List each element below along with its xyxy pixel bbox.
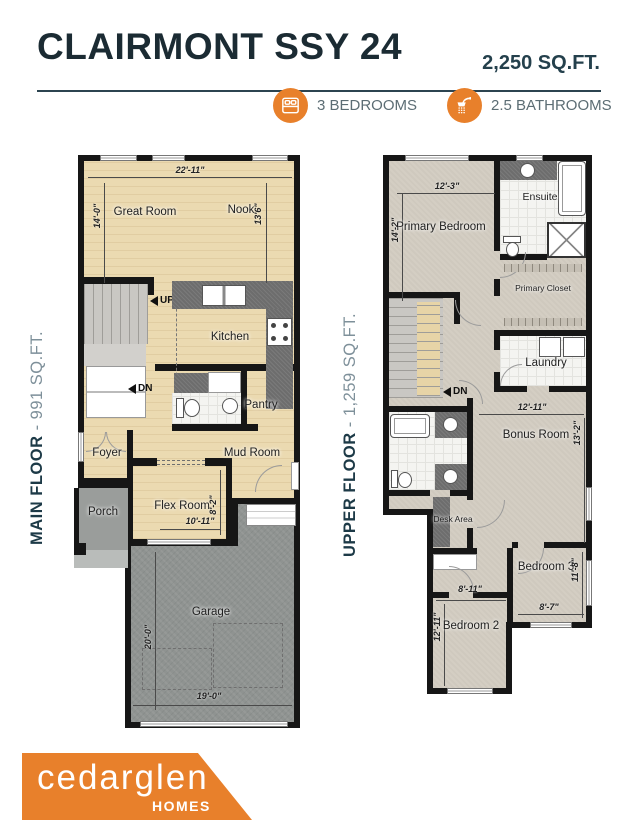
dimension-line [479,414,584,415]
upper-floor-name: UPPER FLOOR [341,432,359,557]
wall [549,386,592,392]
powder-counter [208,372,241,393]
room-label-foyer: Foyer [92,447,121,459]
dimension-line [104,183,105,283]
feature-row: 3 BEDROOMS 2.5 BATHROOMS [273,88,612,123]
shower [547,222,586,258]
room-label-garage: Garage [192,606,230,618]
room-label-great-room: Great Room [114,206,177,218]
window [530,622,572,628]
room-label-pantry: Pantry [244,399,277,411]
wall [494,386,527,392]
stove [267,318,292,346]
bed-icon [273,88,308,123]
main-floor-name: MAIN FLOOR [28,435,46,545]
window [447,688,493,694]
garage-door [140,721,288,727]
dimension-line [88,177,292,178]
dimension-line [220,470,221,535]
arrow-left-icon [128,384,136,394]
garage-parking-outline [213,623,283,688]
dimension-line [397,193,495,194]
stairs-down-marker: DN [128,383,152,394]
wall [84,277,148,284]
window [147,539,211,545]
main-floor-tag: MAIN FLOOR - 991 SQ.FT. [28,295,47,580]
stairs-up-marker: UP [150,295,174,306]
mudroom-bench [291,462,299,490]
room-label-ensuite: Ensuite [522,191,557,203]
room-label-primary-closet: Primary Closet [515,283,571,293]
dimension-line [518,614,584,615]
room-label-flex-room: Flex Room [154,500,210,512]
bathtub [390,414,430,438]
dimension-label: 8'-2" [208,495,218,514]
toilet [398,472,412,488]
porch-floor [74,488,128,550]
dimension-label: 14'-0" [92,204,102,228]
kitchen-sink [202,285,246,306]
dimension-line [436,600,506,601]
dimension-label: 13'6" [253,203,263,224]
page-title: CLAIRMONT SSY 24 [37,26,402,68]
room-label-kitchen: Kitchen [211,331,249,343]
dimension-line [444,604,445,686]
dimension-line [133,705,292,706]
feature-bathrooms-label: 2.5 BATHROOMS [491,97,612,114]
toilet-tank [176,398,184,418]
logo-brand-text: cedarglen [37,758,209,798]
wall [133,458,157,466]
dimension-label: 19'-0" [197,691,221,701]
room-label-bedroom-2: Bedroom 2 [443,620,499,632]
dimension-label: 10'-11" [186,516,215,526]
dimension-line [402,193,403,301]
wall [494,279,500,296]
dimension-label: 20'-0" [143,625,153,649]
room-label-bedroom-3: Bedroom 3 [518,561,574,573]
wall [226,458,232,545]
dryer [563,337,585,357]
sink [222,398,238,414]
closet-rod [504,264,582,272]
sink [443,469,458,484]
garage-steps [246,504,296,526]
staircase-wood-flight [417,302,440,396]
room-label-desk-area: Desk Area [433,514,472,524]
toilet-tank [391,470,398,488]
dimension-line [160,529,220,530]
sink [443,417,458,432]
floorplan-brochure: CLAIRMONT SSY 24 2,250 SQ.FT. 3 BEDROOMS [0,0,639,834]
wall [507,548,513,628]
sink [520,163,535,178]
wall [148,277,154,295]
main-floor-area: - 991 SQ.FT. [28,330,46,430]
flex-opening-dashed [157,460,205,465]
dimension-label: 11'-8" [570,558,580,582]
staircase-up [84,284,148,344]
dimension-label: 12'-3" [435,181,459,191]
dimension-line [584,418,585,543]
washer [539,337,561,357]
total-sqft: 2,250 SQ.FT. [482,52,600,75]
wall [172,424,258,431]
stair-landing [84,344,146,366]
dimension-label: 13'-2" [572,421,582,445]
window [152,155,185,161]
wall [467,398,473,500]
wall [467,528,473,548]
dimension-label: 22'-11" [176,165,205,175]
toilet [184,399,200,417]
room-label-primary-bedroom: Primary Bedroom [396,221,485,233]
closet-rod [504,318,582,326]
dimension-line [266,183,267,283]
dimension-label: 14'-2" [390,218,400,242]
dimension-line [155,552,156,710]
dimension-line [582,552,583,618]
powder-vanity [174,373,208,393]
wall [383,490,430,496]
wall [450,490,473,496]
cedarglen-logo: cedarglen HOMES [22,753,252,820]
stove-burners [271,323,276,328]
arrow-left-icon [443,387,451,397]
dimension-label: 8'-7" [539,602,558,612]
room-label-bonus-room: Bonus Room [503,429,569,441]
dimension-label: 12'-11" [432,613,442,642]
bathtub [558,161,586,216]
room-label-laundry: Laundry [525,357,567,369]
dimension-label: 12'-11" [518,402,547,412]
feature-bedrooms-label: 3 BEDROOMS [317,97,417,114]
wall [427,592,449,598]
front-door-opening [78,432,84,462]
window [405,155,469,161]
window [252,155,288,161]
window [100,155,137,161]
room-label-nook: Nook [228,204,255,216]
garage-parking-outline [142,648,212,690]
shower-icon [447,88,482,123]
arrow-left-icon [150,296,158,306]
dimension-label: 8'-11" [458,584,482,594]
feature-bathrooms: 2.5 BATHROOMS [447,88,612,123]
room-label-mud-room: Mud Room [224,447,280,459]
window [586,487,592,521]
room-label-porch: Porch [88,506,118,518]
wall [78,478,133,488]
feature-bedrooms: 3 BEDROOMS [273,88,417,123]
upper-floor-tag: UPPER FLOOR - 1,259 SQ.FT. [341,290,360,580]
upper-floor-area: - 1,259 SQ.FT. [341,313,359,427]
porch-post [74,543,86,555]
window [586,560,592,606]
logo-homes-text: HOMES [152,798,211,814]
